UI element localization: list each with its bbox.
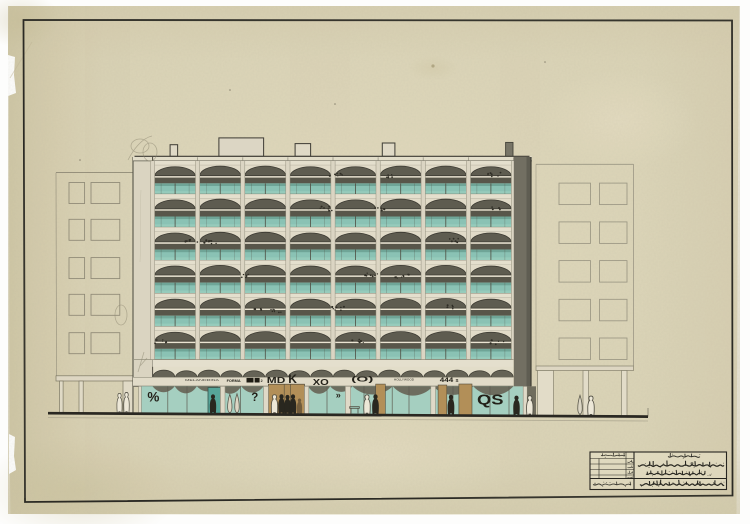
svg-text:--•/: --•/ [707, 473, 712, 477]
